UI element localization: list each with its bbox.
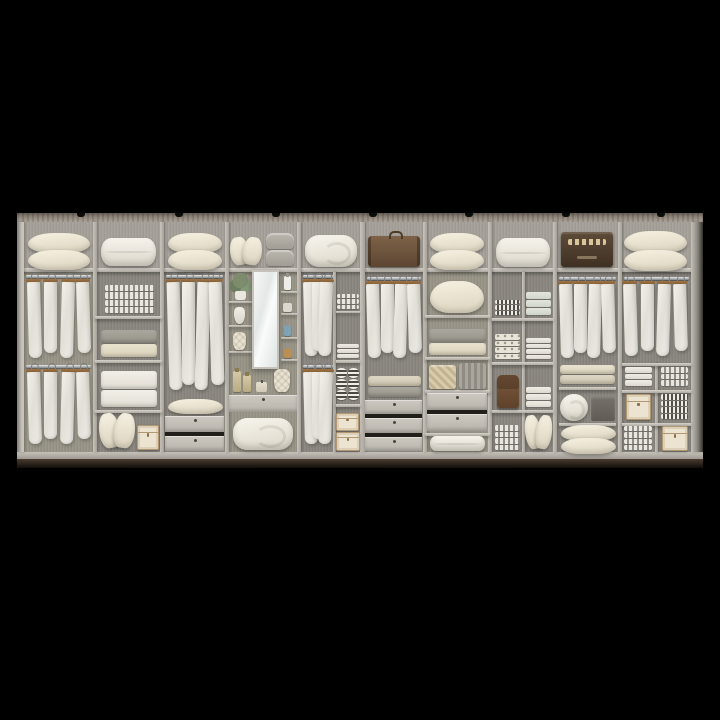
folded-duvet-top-bay8 xyxy=(496,238,550,267)
divider xyxy=(297,222,301,452)
rolled-duvet-bay4 xyxy=(233,418,293,450)
hanging-shirts-bay3 xyxy=(167,273,223,397)
shelf xyxy=(336,360,360,363)
stacked-pillows-bay3 xyxy=(168,233,222,267)
vanity-drawer xyxy=(229,395,297,412)
wardrobe-plinth xyxy=(17,459,703,468)
folded-throw-blanket xyxy=(368,376,421,398)
white-sheets xyxy=(337,344,359,359)
shelf xyxy=(229,301,252,303)
shelf xyxy=(492,318,553,321)
rolled-duvet-top-bay5 xyxy=(305,235,357,267)
divider xyxy=(488,222,492,452)
shelf xyxy=(336,404,360,407)
divider xyxy=(553,222,557,452)
patterned-towels xyxy=(495,300,520,316)
storage-trunk xyxy=(336,413,359,431)
storage-trunk xyxy=(662,426,688,451)
rolled-duvet-small xyxy=(560,394,588,421)
subdivider xyxy=(655,363,658,452)
storage-trunk-small xyxy=(137,425,159,450)
shelf xyxy=(229,351,252,353)
fabric-storage-box xyxy=(591,396,615,421)
stacked-pillows-bottom-bay9 xyxy=(561,425,616,451)
hanging-garments-lower-bay5 xyxy=(303,363,332,451)
print-towels xyxy=(661,367,688,387)
shelf xyxy=(492,410,553,413)
flat-pillow xyxy=(168,399,223,414)
geometric-vase xyxy=(274,369,290,392)
leaning-pillows xyxy=(99,413,135,450)
hanging-shirts-bay10 xyxy=(623,275,687,363)
candle-cup xyxy=(256,382,267,392)
folded-duvet-bay2 xyxy=(101,238,156,266)
left-frame xyxy=(17,222,24,452)
shelf xyxy=(622,363,691,366)
photo-canvas xyxy=(0,0,720,720)
striped-storage-box xyxy=(459,363,486,389)
dressing-mirror xyxy=(252,270,279,369)
canister xyxy=(243,375,251,392)
blue-bottle xyxy=(284,325,291,336)
mint-linens xyxy=(526,292,551,316)
shelf xyxy=(281,313,297,315)
hanging-shirts-lower-bay1 xyxy=(27,363,90,451)
fringed-blanket xyxy=(560,365,615,385)
stacked-pillows-bay7 xyxy=(430,233,484,267)
hanging-shirts-upper-bay1 xyxy=(27,273,90,365)
wardrobe-top-panel xyxy=(17,213,703,222)
leaning-pillows-bay8 xyxy=(525,415,552,451)
two-drawer-unit-bay3 xyxy=(165,416,224,451)
woven-basket xyxy=(429,365,456,389)
white-towels xyxy=(625,367,652,387)
cosmetic-jar xyxy=(283,303,292,312)
divider xyxy=(160,222,164,452)
mark xyxy=(175,213,183,217)
leather-toiletry-bag xyxy=(497,375,519,408)
shelf xyxy=(95,316,162,319)
mark xyxy=(465,213,473,217)
divider xyxy=(618,222,622,452)
shelf xyxy=(281,337,297,339)
patterned-towel-stack xyxy=(105,285,155,314)
shelf xyxy=(425,315,490,318)
folded-duvet-bottom xyxy=(430,436,485,451)
folded-blankets-bay7 xyxy=(429,329,486,356)
canister xyxy=(233,371,241,392)
cosmetic-bottle xyxy=(284,276,291,290)
vintage-case xyxy=(561,232,613,267)
divider xyxy=(225,222,229,452)
mark xyxy=(562,213,570,217)
shelf xyxy=(425,357,490,360)
shelf xyxy=(336,311,360,313)
white-towels xyxy=(526,387,551,408)
three-drawer-unit xyxy=(365,400,422,451)
wardrobe xyxy=(17,213,703,468)
brown-suitcase xyxy=(368,236,420,267)
stacked-hat-boxes xyxy=(266,233,294,267)
print-towels xyxy=(624,426,652,451)
sculpted-vase xyxy=(233,332,246,350)
patterned-towels xyxy=(661,394,688,420)
shelf xyxy=(281,291,297,293)
shelf xyxy=(492,362,553,365)
hanging-shirts-bay9 xyxy=(559,275,615,365)
white-sheets xyxy=(526,338,551,360)
shelf xyxy=(622,390,691,393)
hanging-shirts-upper-bay5 xyxy=(303,273,332,363)
stacked-pillows-bay10 xyxy=(624,231,687,268)
print-towels xyxy=(495,425,520,451)
mark xyxy=(77,213,85,217)
hanging-shirts-bay6 xyxy=(366,275,421,365)
storage-trunk xyxy=(626,394,651,420)
print-towels xyxy=(337,294,359,310)
right-frame xyxy=(691,222,703,452)
mark xyxy=(369,213,377,217)
leaning-pillows-top xyxy=(230,237,262,267)
storage-trunk xyxy=(336,432,360,451)
shelf xyxy=(281,359,297,361)
two-drawer-unit-bay7 xyxy=(427,393,487,431)
single-pillow xyxy=(430,281,484,313)
folded-white-duvets xyxy=(101,371,157,408)
mark xyxy=(657,213,665,217)
floral-towels xyxy=(495,334,520,360)
shelf xyxy=(559,387,616,390)
perfume-bottle xyxy=(284,348,292,358)
folded-blankets xyxy=(101,330,157,358)
rolled-towel-cubby xyxy=(336,368,360,404)
stacked-pillows-bay1 xyxy=(28,233,90,267)
shelf xyxy=(229,325,252,327)
shelf xyxy=(95,360,162,363)
mark xyxy=(272,213,280,217)
potted-plant xyxy=(230,273,251,300)
divider xyxy=(93,222,97,452)
